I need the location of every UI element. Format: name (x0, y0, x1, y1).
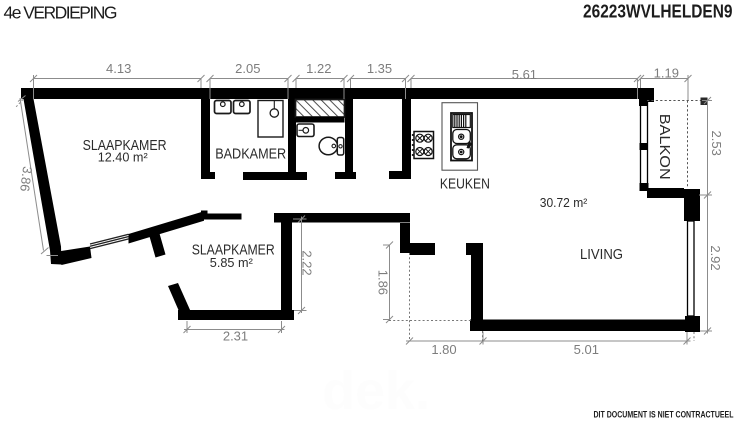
svg-text:1.86: 1.86 (376, 270, 391, 295)
svg-text:1.80: 1.80 (431, 342, 456, 357)
svg-text:5.01: 5.01 (574, 342, 599, 357)
svg-text:1.19: 1.19 (654, 66, 679, 81)
svg-text:4.13: 4.13 (106, 61, 131, 76)
svg-text:2.05: 2.05 (235, 61, 260, 76)
svg-text:5.61: 5.61 (512, 67, 537, 82)
svg-text:12.40 m²: 12.40 m² (98, 150, 149, 165)
svg-text:2.92: 2.92 (708, 245, 723, 270)
svg-text:2.53: 2.53 (709, 131, 724, 156)
svg-text:BALKON: BALKON (656, 114, 672, 180)
svg-text:BADKAMER: BADKAMER (215, 147, 286, 163)
svg-text:2.31: 2.31 (223, 329, 248, 344)
svg-text:1.22: 1.22 (306, 61, 331, 76)
svg-text:KEUKEN: KEUKEN (440, 176, 490, 192)
svg-text:LIVING: LIVING (580, 247, 623, 263)
svg-text:1.35: 1.35 (367, 61, 392, 76)
svg-text:3.86: 3.86 (17, 165, 35, 192)
svg-text:4e VERDIEPING: 4e VERDIEPING (4, 3, 118, 23)
svg-text:DIT DOCUMENT IS NIET CONTRACTU: DIT DOCUMENT IS NIET CONTRACTUEEL (594, 410, 734, 421)
svg-text:2.22: 2.22 (300, 250, 315, 275)
svg-text:26223WVLHELDEN9: 26223WVLHELDEN9 (583, 2, 733, 22)
svg-text:30.72 m²: 30.72 m² (540, 195, 588, 210)
svg-text:dek.: dek. (322, 361, 430, 421)
svg-text:5.85 m²: 5.85 m² (210, 255, 254, 270)
